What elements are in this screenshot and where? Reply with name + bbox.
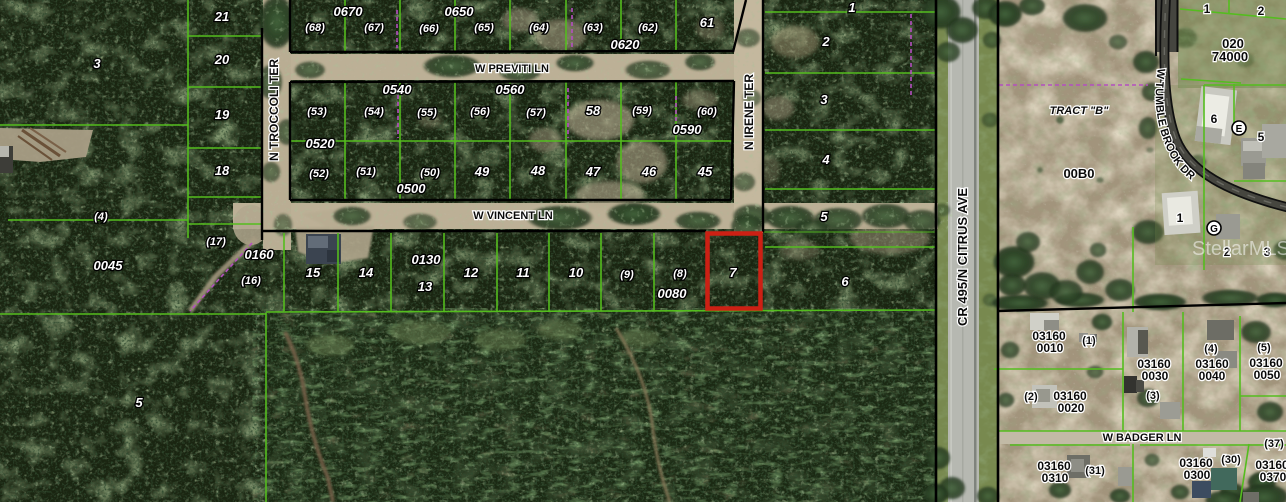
- svg-text:0300: 0300: [1184, 468, 1211, 482]
- svg-text:46: 46: [641, 164, 657, 179]
- svg-text:3: 3: [93, 56, 101, 71]
- svg-text:0650: 0650: [445, 4, 475, 19]
- svg-text:(62): (62): [638, 22, 658, 34]
- svg-text:74000: 74000: [1212, 49, 1248, 64]
- svg-text:1: 1: [1204, 2, 1211, 16]
- svg-text:0020: 0020: [1058, 401, 1085, 415]
- svg-text:TRACT "B": TRACT "B": [1050, 105, 1109, 117]
- svg-text:19: 19: [215, 107, 230, 122]
- svg-text:0500: 0500: [397, 181, 427, 196]
- svg-text:CR 495/N CITRUS AVE: CR 495/N CITRUS AVE: [955, 188, 970, 326]
- svg-text:18: 18: [215, 163, 230, 178]
- svg-text:5: 5: [1258, 130, 1265, 144]
- svg-text:(64): (64): [529, 22, 549, 34]
- svg-text:0040: 0040: [1199, 369, 1226, 383]
- svg-text:45: 45: [697, 164, 713, 179]
- svg-text:1: 1: [848, 0, 855, 15]
- svg-text:14: 14: [359, 265, 374, 280]
- svg-text:(9): (9): [620, 269, 634, 281]
- svg-text:0590: 0590: [673, 122, 703, 137]
- svg-text:5: 5: [135, 395, 143, 410]
- svg-text:7: 7: [729, 265, 737, 280]
- svg-text:(59): (59): [632, 105, 652, 117]
- svg-text:(68): (68): [305, 22, 325, 34]
- svg-text:(50): (50): [420, 167, 440, 179]
- svg-text:3: 3: [820, 92, 828, 107]
- svg-text:0030: 0030: [1142, 369, 1169, 383]
- svg-text:0080: 0080: [658, 286, 688, 301]
- svg-text:(4): (4): [94, 211, 108, 223]
- svg-text:0310: 0310: [1042, 471, 1069, 485]
- svg-text:21: 21: [214, 9, 229, 24]
- svg-text:(60): (60): [697, 106, 717, 118]
- svg-text:(4): (4): [1204, 343, 1218, 355]
- svg-text:W BADGER LN: W BADGER LN: [1103, 432, 1182, 444]
- svg-text:0010: 0010: [1037, 341, 1064, 355]
- svg-text:(67): (67): [364, 22, 384, 34]
- svg-text:(51): (51): [356, 166, 376, 178]
- svg-text:2: 2: [821, 34, 830, 49]
- svg-text:(2): (2): [1024, 391, 1038, 403]
- svg-text:(16): (16): [241, 275, 261, 287]
- svg-text:0670: 0670: [334, 4, 364, 19]
- svg-text:48: 48: [530, 163, 546, 178]
- svg-text:15: 15: [306, 265, 321, 280]
- svg-text:4: 4: [821, 152, 830, 167]
- svg-text:0130: 0130: [412, 252, 442, 267]
- svg-text:47: 47: [585, 164, 601, 179]
- svg-text:0560: 0560: [496, 82, 526, 97]
- svg-text:(52): (52): [309, 168, 329, 180]
- svg-text:20: 20: [214, 52, 230, 67]
- svg-text:(55): (55): [417, 107, 437, 119]
- svg-text:(56): (56): [470, 106, 490, 118]
- svg-text:(30): (30): [1221, 454, 1241, 466]
- svg-text:(37): (37): [1264, 438, 1284, 450]
- svg-text:5: 5: [820, 209, 828, 224]
- svg-text:(8): (8): [673, 268, 687, 280]
- svg-text:1: 1: [1177, 211, 1184, 225]
- svg-text:0045: 0045: [94, 258, 124, 273]
- svg-text:(65): (65): [474, 22, 494, 34]
- svg-text:0050: 0050: [1254, 368, 1281, 382]
- svg-text:(17): (17): [206, 236, 226, 248]
- svg-text:(5): (5): [1257, 342, 1271, 354]
- svg-text:W PREVITI LN: W PREVITI LN: [475, 63, 549, 75]
- svg-text:0520: 0520: [306, 136, 336, 151]
- svg-text:6: 6: [841, 274, 849, 289]
- svg-text:(54): (54): [364, 106, 384, 118]
- svg-text:00B0: 00B0: [1063, 166, 1094, 181]
- svg-text:13: 13: [418, 279, 433, 294]
- svg-text:(63): (63): [583, 22, 603, 34]
- svg-text:10: 10: [569, 265, 584, 280]
- svg-text:61: 61: [700, 15, 714, 30]
- svg-text:W VINCENT LN: W VINCENT LN: [473, 210, 552, 222]
- svg-text:N TROCCOLI TER: N TROCCOLI TER: [267, 59, 281, 161]
- svg-text:(57): (57): [526, 107, 546, 119]
- svg-text:(53): (53): [307, 106, 327, 118]
- svg-text:E: E: [1236, 124, 1243, 135]
- svg-text:StellarMLS: StellarMLS: [1192, 238, 1286, 260]
- svg-text:2: 2: [1258, 4, 1265, 18]
- svg-text:58: 58: [586, 103, 601, 118]
- svg-text:0620: 0620: [611, 37, 641, 52]
- svg-text:12: 12: [464, 265, 479, 280]
- svg-text:49: 49: [474, 164, 490, 179]
- svg-text:0370: 0370: [1260, 470, 1286, 484]
- svg-text:0540: 0540: [383, 82, 413, 97]
- svg-text:11: 11: [516, 265, 530, 280]
- svg-text:0160: 0160: [245, 247, 275, 262]
- svg-text:6: 6: [1211, 112, 1218, 126]
- svg-text:N IRENE TER: N IRENE TER: [742, 74, 756, 150]
- svg-text:(3): (3): [1146, 390, 1160, 402]
- svg-text:G: G: [1210, 224, 1218, 235]
- svg-text:(1): (1): [1082, 335, 1096, 347]
- svg-text:(31): (31): [1085, 465, 1105, 477]
- svg-text:(66): (66): [419, 23, 439, 35]
